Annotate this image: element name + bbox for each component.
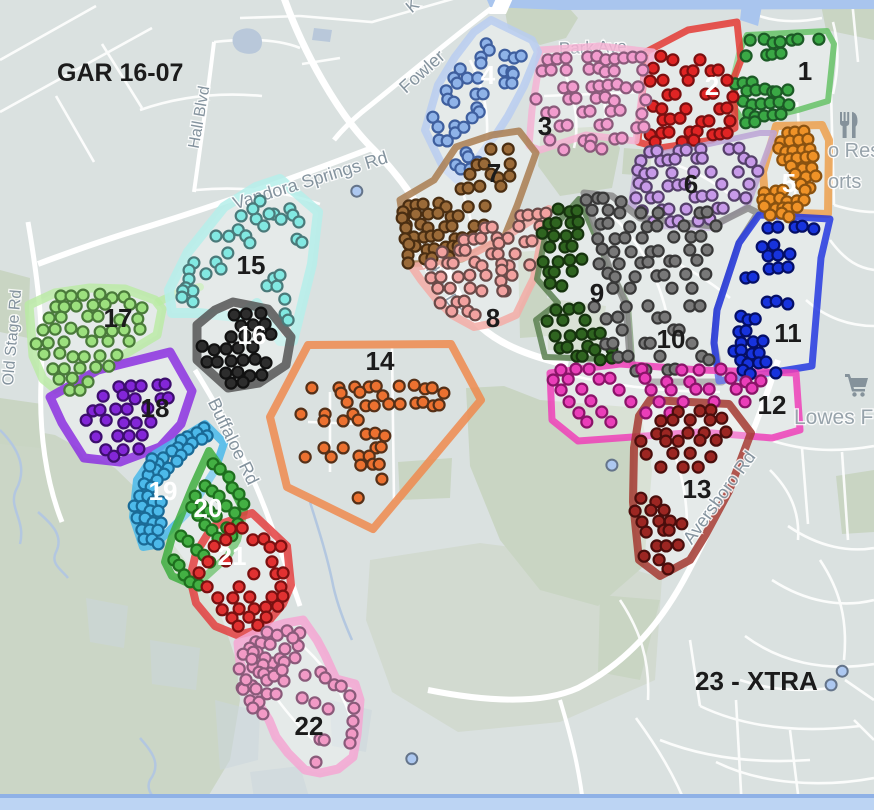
svg-text:22: 22 (295, 711, 324, 741)
svg-text:1: 1 (798, 56, 812, 86)
svg-text:21: 21 (218, 541, 247, 571)
svg-text:10: 10 (657, 324, 686, 354)
svg-text:12: 12 (758, 390, 787, 420)
svg-text:8: 8 (486, 303, 500, 333)
svg-text:o Res: o Res (828, 140, 874, 162)
svg-text:3: 3 (538, 111, 552, 141)
svg-text:Lowes F: Lowes F (794, 406, 873, 429)
svg-text:7: 7 (487, 158, 501, 188)
svg-text:14: 14 (366, 346, 395, 376)
svg-text:GAR 16-07: GAR 16-07 (57, 59, 183, 87)
svg-text:13: 13 (683, 474, 712, 504)
svg-text:23 - XTRA: 23 - XTRA (695, 666, 818, 696)
svg-text:6: 6 (684, 169, 698, 199)
svg-text:9: 9 (590, 278, 604, 308)
svg-text:20: 20 (194, 493, 223, 523)
svg-text:16: 16 (238, 320, 267, 350)
svg-text:5: 5 (782, 168, 796, 198)
svg-text:18: 18 (141, 393, 170, 423)
svg-text:15: 15 (237, 250, 266, 280)
svg-text:2: 2 (705, 71, 719, 101)
svg-text:17: 17 (104, 303, 133, 333)
svg-text:11: 11 (774, 318, 802, 348)
svg-text:19: 19 (149, 476, 178, 506)
svg-text:orts: orts (828, 171, 861, 193)
svg-text:4: 4 (481, 60, 496, 90)
